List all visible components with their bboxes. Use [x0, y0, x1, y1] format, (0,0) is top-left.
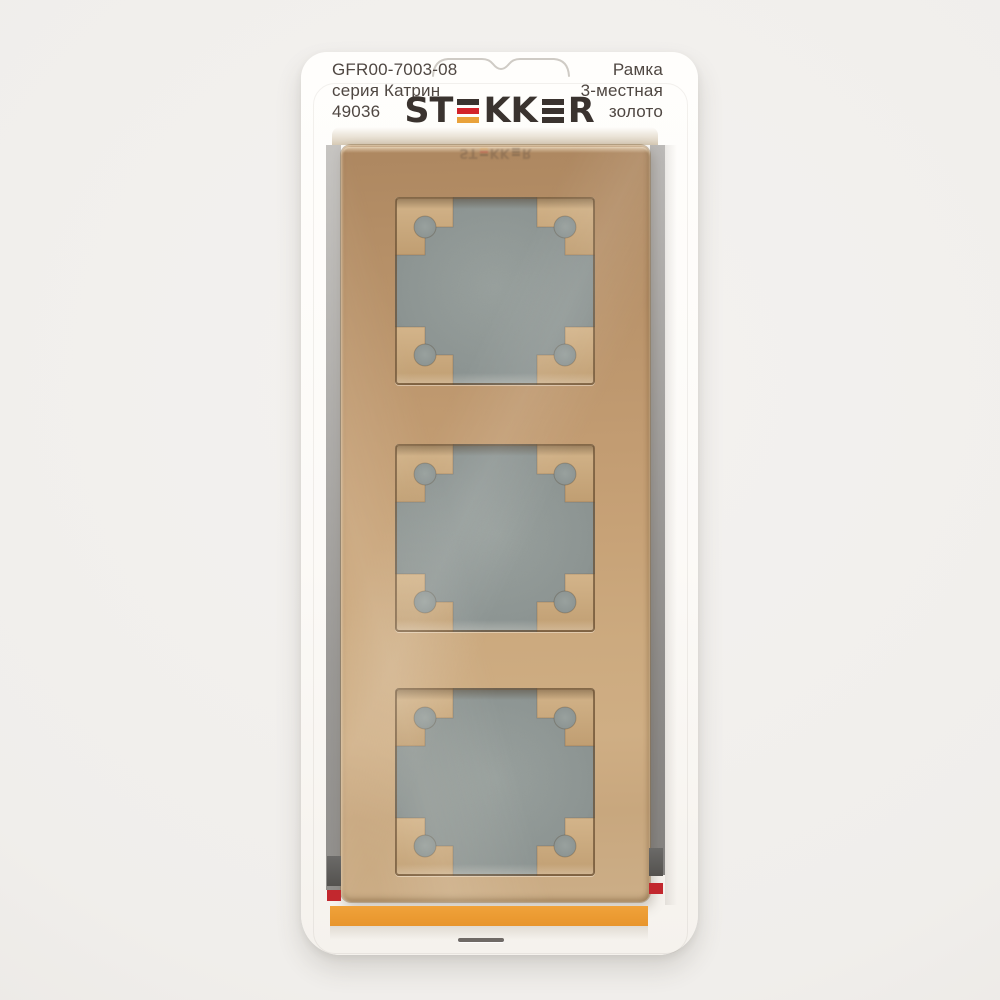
- logo-letter-r: R: [568, 98, 595, 124]
- brand-stripe-black-left: [327, 856, 341, 886]
- frame-window-2: [395, 444, 595, 632]
- frame-window-1: [395, 197, 595, 385]
- product-type: Рамка: [581, 59, 663, 80]
- blister-wall-left: [326, 145, 341, 890]
- logo-reflection-r: R: [522, 147, 532, 157]
- blister-wall-right: [650, 145, 665, 875]
- logo-e-dark-icon: [542, 99, 564, 123]
- brand-stripe-black-right: [649, 848, 663, 876]
- logo-reflection-e2-icon: [512, 148, 520, 156]
- brand-stripe-orange: [330, 906, 648, 926]
- blister-dome-top: [332, 127, 658, 145]
- logo-reflection-kk: KK: [490, 147, 510, 157]
- hang-slit: [458, 938, 504, 942]
- product-code: GFR00-7003-08: [332, 59, 457, 80]
- gold-frame: ST KK R: [341, 145, 650, 902]
- logo-reflection-e-icon: [480, 148, 488, 156]
- blister-card: GFR00-7003-08 серия Катрин 49036 Рамка 3…: [301, 52, 698, 955]
- logo-letters-kk: KK: [483, 98, 537, 124]
- brand-stripe-red-right: [649, 883, 663, 894]
- logo-reflection-st: ST: [459, 147, 477, 157]
- brand-stripe-red-left: [327, 890, 341, 901]
- blister-shadow: [665, 145, 677, 905]
- photo-background: GFR00-7003-08 серия Катрин 49036 Рамка 3…: [0, 0, 1000, 1000]
- frame-window-3: [395, 688, 595, 876]
- logo-letters-st: ST: [404, 98, 453, 124]
- logo-e-colored-icon: [457, 99, 479, 123]
- brand-logo: ST KK R: [301, 98, 698, 124]
- logo-reflection: ST KK R: [341, 147, 650, 157]
